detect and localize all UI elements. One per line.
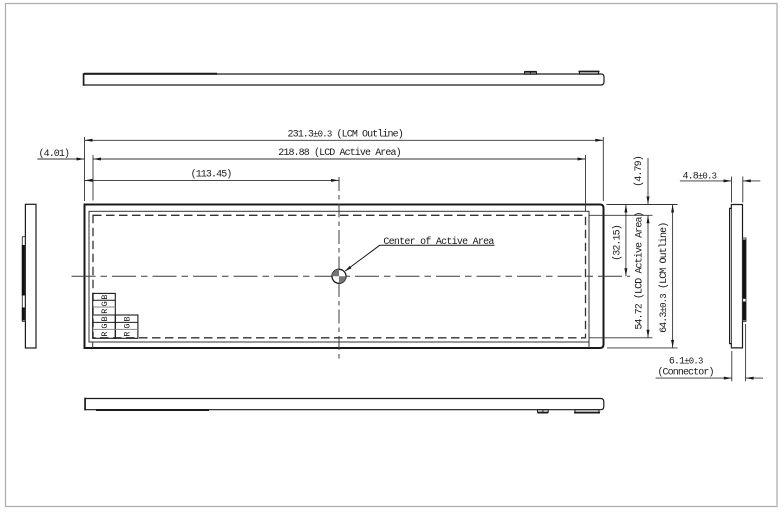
svg-text:G: G (100, 324, 110, 329)
svg-text:6.1±0.3: 6.1±0.3 (669, 357, 703, 368)
svg-text:B: B (100, 294, 110, 299)
svg-text:R: R (123, 331, 133, 336)
svg-text:R: R (100, 309, 110, 314)
svg-text:B: B (100, 316, 110, 321)
svg-text:R: R (100, 331, 110, 336)
svg-text:(4.01): (4.01) (39, 148, 70, 160)
svg-text:(4.79): (4.79) (633, 156, 645, 187)
svg-text:(113.45): (113.45) (191, 169, 232, 181)
svg-text:54.72 (LCD Active Area): 54.72 (LCD Active Area) (634, 212, 646, 329)
svg-text:(Connector): (Connector) (657, 367, 713, 379)
svg-text:4.8±0.3: 4.8±0.3 (683, 171, 717, 182)
svg-text:G: G (100, 301, 110, 306)
svg-text:(32.15): (32.15) (612, 225, 624, 261)
svg-text:B: B (123, 316, 133, 321)
svg-text:Center of Active Area: Center of Active Area (383, 236, 494, 248)
svg-text:231.3±0.3 (LCM Outline): 231.3±0.3 (LCM Outline) (288, 129, 403, 141)
svg-text:218.88 (LCD Active Area): 218.88 (LCD Active Area) (278, 147, 400, 159)
svg-text:G: G (123, 324, 133, 329)
svg-text:64.3±0.3 (LCM Outline): 64.3±0.3 (LCM Outline) (658, 223, 670, 333)
